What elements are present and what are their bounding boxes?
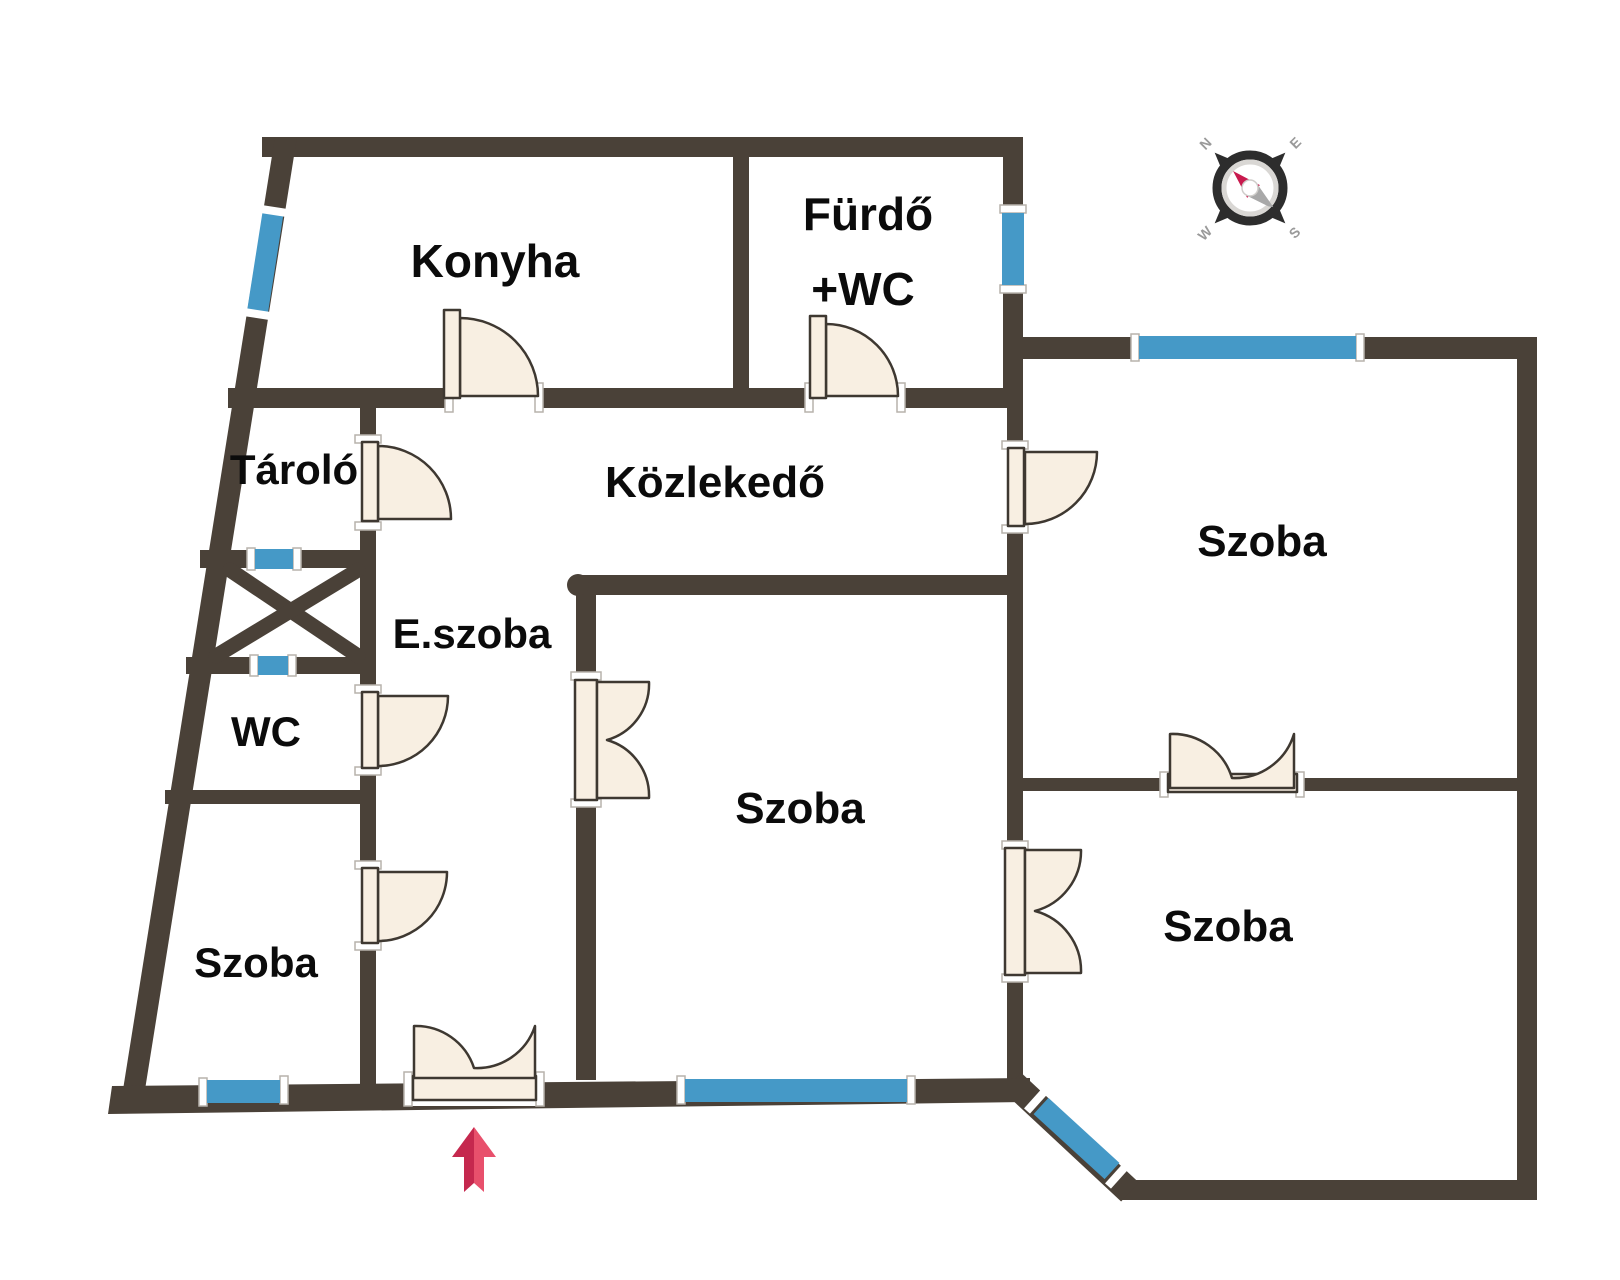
door-szoba-top-right	[1008, 448, 1097, 526]
door-right-rooms-double	[1168, 734, 1297, 792]
label-wc: WC	[231, 708, 301, 755]
door-openings	[356, 384, 1297, 1106]
label-kozlekedo: Közlekedő	[605, 458, 825, 507]
door-szoba-center-double	[575, 680, 649, 800]
door-tarolo	[362, 442, 451, 521]
label-furdo: Fürdő	[803, 188, 933, 240]
window-diagonal	[1041, 1106, 1112, 1171]
door-furdo	[810, 316, 898, 398]
window-shaft-bottom	[258, 656, 288, 675]
label-szoba-bottom-right: Szoba	[1163, 902, 1293, 951]
door-jambs	[355, 383, 1304, 1106]
label-szoba-center: Szoba	[735, 784, 865, 833]
window-szoba-center	[685, 1079, 907, 1102]
door-szoba-bottom-left	[362, 868, 447, 943]
window-szoba-bottom-left	[207, 1080, 280, 1103]
door-entrance-double	[413, 1026, 536, 1100]
compass-letter-e: E	[1286, 134, 1304, 152]
door-konyha	[444, 310, 538, 398]
floor-plan-page: Konyha Fürdő +WC Tároló Közlekedő E.szob…	[0, 0, 1620, 1280]
floor-plan-canvas: Konyha Fürdő +WC Tároló Közlekedő E.szob…	[0, 0, 1620, 1280]
label-szoba-bottom-left: Szoba	[194, 939, 318, 986]
window-furdo-cap	[1000, 205, 1026, 213]
doors	[362, 310, 1297, 1100]
compass-icon: N E S W	[1150, 89, 1349, 288]
compass-letter-s: S	[1286, 224, 1304, 242]
window-shaft-top	[255, 549, 293, 569]
door-szoba-bottom-right-double	[1005, 848, 1081, 975]
window-szoba-top-right	[1139, 336, 1356, 359]
compass-letter-n: N	[1196, 134, 1214, 152]
entrance-arrow-icon	[452, 1127, 496, 1192]
door-wc	[362, 692, 448, 768]
label-eszoba: E.szoba	[393, 610, 552, 657]
label-furdo-wc: +WC	[811, 263, 915, 315]
label-szoba-top-right: Szoba	[1197, 517, 1327, 566]
label-konyha: Konyha	[411, 235, 580, 287]
window-furdo	[1002, 213, 1024, 285]
label-tarolo: Tároló	[230, 446, 358, 493]
compass-letter-w: W	[1194, 222, 1215, 243]
